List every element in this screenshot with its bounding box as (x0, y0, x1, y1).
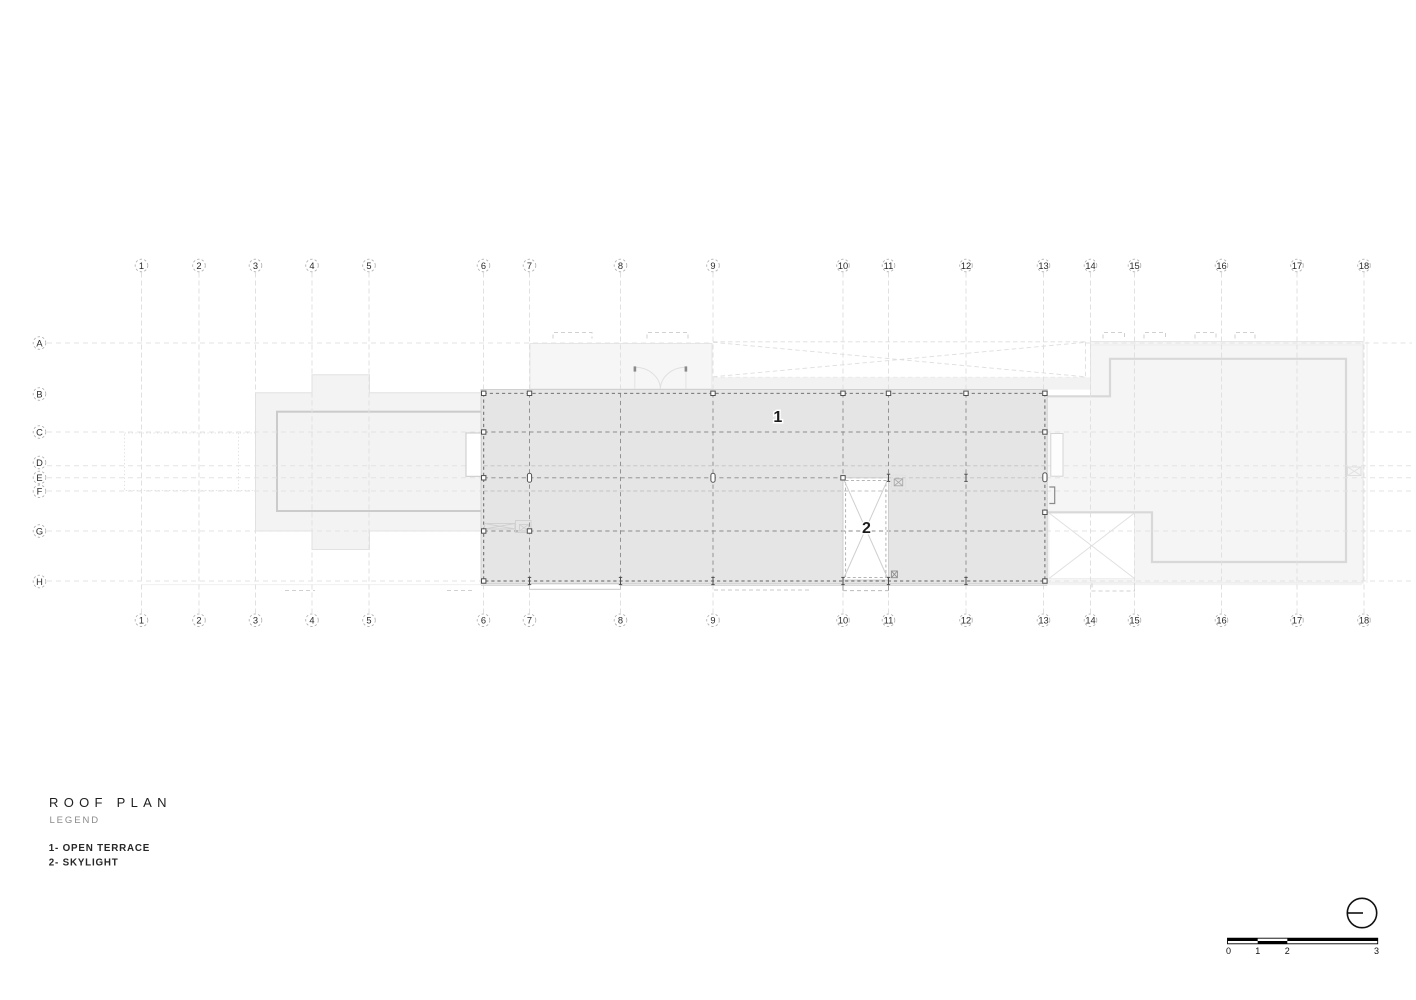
svg-text:18: 18 (1359, 616, 1369, 626)
svg-text:9: 9 (710, 616, 715, 626)
svg-text:14: 14 (1085, 261, 1095, 271)
svg-text:9: 9 (710, 261, 715, 271)
svg-text:8: 8 (618, 261, 623, 271)
svg-text:3: 3 (253, 261, 258, 271)
svg-text:13: 13 (1038, 616, 1048, 626)
svg-text:11: 11 (884, 616, 894, 626)
svg-text:1: 1 (1255, 946, 1260, 956)
svg-text:D: D (36, 458, 43, 468)
svg-text:11: 11 (884, 261, 894, 271)
svg-text:2: 2 (1285, 946, 1290, 956)
svg-text:F: F (37, 487, 43, 497)
svg-text:1: 1 (139, 616, 144, 626)
svg-text:0: 0 (1226, 946, 1231, 956)
svg-text:2: 2 (862, 520, 871, 537)
svg-text:6: 6 (481, 261, 486, 271)
svg-text:15: 15 (1129, 261, 1139, 271)
svg-text:10: 10 (838, 616, 848, 626)
svg-text:16: 16 (1216, 616, 1226, 626)
svg-text:5: 5 (366, 261, 371, 271)
svg-text:LEGEND: LEGEND (50, 815, 100, 826)
svg-text:17: 17 (1292, 261, 1302, 271)
svg-text:H: H (36, 577, 43, 587)
svg-text:13: 13 (1038, 261, 1048, 271)
svg-text:3: 3 (253, 616, 258, 626)
svg-text:C: C (36, 427, 43, 437)
svg-text:G: G (36, 526, 43, 536)
svg-text:12: 12 (961, 261, 971, 271)
svg-text:4: 4 (309, 616, 314, 626)
svg-text:B: B (36, 389, 42, 399)
svg-text:16: 16 (1216, 261, 1226, 271)
svg-text:2: 2 (196, 616, 201, 626)
svg-text:1: 1 (773, 409, 782, 426)
svg-text:18: 18 (1359, 261, 1369, 271)
svg-text:6: 6 (481, 616, 486, 626)
svg-text:7: 7 (527, 261, 532, 271)
svg-text:3: 3 (1374, 946, 1379, 956)
svg-text:7: 7 (527, 616, 532, 626)
svg-text:2: 2 (196, 261, 201, 271)
svg-text:ROOF PLAN: ROOF PLAN (49, 795, 172, 810)
svg-text:12: 12 (961, 616, 971, 626)
svg-text:17: 17 (1292, 616, 1302, 626)
svg-text:A: A (36, 338, 43, 348)
svg-text:8: 8 (618, 616, 623, 626)
svg-text:1- OPEN TERRACE: 1- OPEN TERRACE (49, 843, 150, 854)
svg-text:5: 5 (366, 616, 371, 626)
svg-text:10: 10 (838, 261, 848, 271)
svg-text:2- SKYLIGHT: 2- SKYLIGHT (49, 858, 119, 869)
svg-text:15: 15 (1129, 616, 1139, 626)
svg-text:E: E (36, 473, 42, 483)
svg-text:4: 4 (309, 261, 314, 271)
svg-text:1: 1 (139, 261, 144, 271)
svg-text:14: 14 (1085, 616, 1095, 626)
